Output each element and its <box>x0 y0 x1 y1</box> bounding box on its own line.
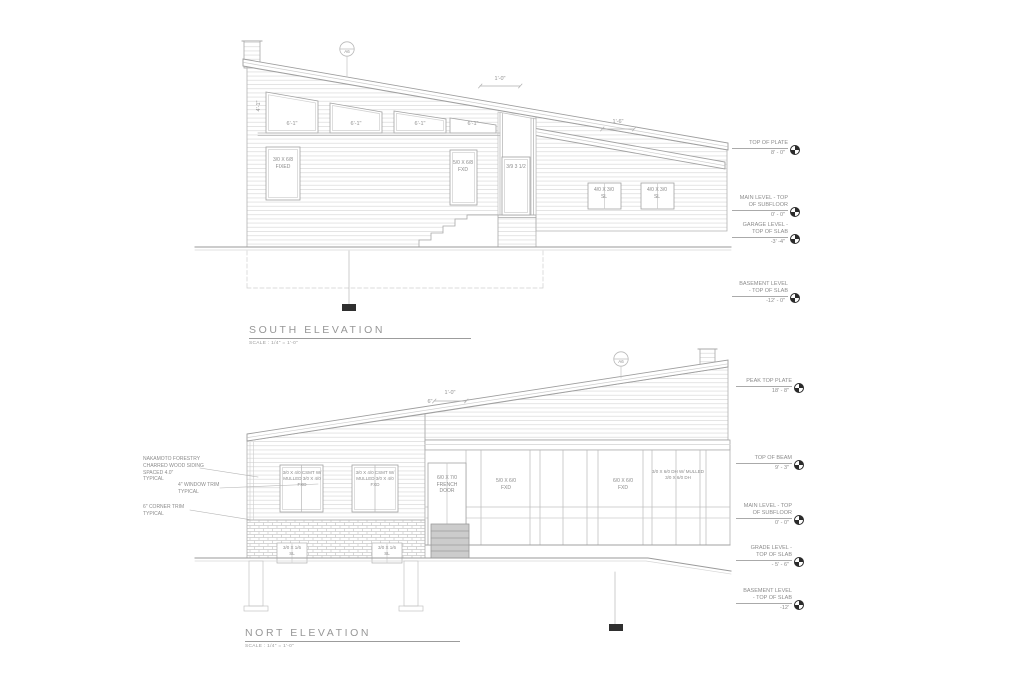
south-window-label-left: 3/0 X 6/8 FIXED <box>266 157 300 170</box>
south-dim-clerestory-1: 6'-1" <box>276 121 308 127</box>
north-level-main: MAIN LEVEL - TOP OF SUBFLOOR 0' - 0" <box>736 503 792 527</box>
north-casement-label-left: 3/0 X 4/0 CSMT W/ MULLED 3/0 X 4/0 FXD <box>281 470 323 488</box>
level-name: TOP OF BEAM <box>736 455 792 464</box>
south-door-label: 3/9 3 1/2 <box>500 164 532 171</box>
north-casement-label-right: 3/0 X 4/0 CSMT W/ MULLED 3/0 X 4/0 FXD <box>353 470 397 488</box>
north-title: NORT ELEVATION <box>245 627 460 642</box>
north-footing-left <box>244 606 268 611</box>
south-garage-window-label-right: 4/0 X 3/0 SL <box>640 187 674 200</box>
level-elevation: 18' - 8" <box>736 387 792 395</box>
north-note-window-trim: 4" WINDOW TRIM TYPICAL <box>178 482 236 496</box>
south-level-main: MAIN LEVEL - TOP OF SUBFLOOR 0' - 0" <box>732 195 788 219</box>
south-level-top-of-plate: TOP OF PLATE 8' - 0" <box>732 140 788 157</box>
south-fixed-window-left <box>266 147 300 200</box>
north-footing-right <box>399 606 423 611</box>
south-dim-overhang-line <box>479 84 523 88</box>
south-dim-clerestory-4: 6'-1" <box>457 121 489 127</box>
level-elevation: 0' - 0" <box>732 211 788 219</box>
level-elevation: -12' <box>736 604 792 612</box>
south-marker-bar <box>342 304 356 311</box>
south-foundation-dashed <box>247 251 543 288</box>
south-dim-clerestory-2: 6'-1" <box>340 121 372 127</box>
north-french-door-label: 6/0 X 7/0 FRENCH DOOR <box>429 475 465 495</box>
south-fixed-window-right <box>450 150 477 205</box>
south-dim-garage-overhang: 1'-6" <box>602 119 634 125</box>
north-grade-line <box>195 558 731 571</box>
north-stairs <box>431 524 469 558</box>
north-level-grade: GRADE LEVEL - TOP OF SLAB - 5' - 6" <box>736 545 792 569</box>
north-note-siding: NAKAMOTO FORESTRY CHARRED WOOD SIDING SP… <box>143 456 207 483</box>
level-elevation: 0' - 0" <box>736 519 792 527</box>
north-level-top-of-beam: TOP OF BEAM 9' - 3" <box>736 455 792 472</box>
level-elevation: 8' - 0" <box>732 149 788 157</box>
north-level-basement: BASEMENT LEVEL - TOP OF SLAB -12' <box>736 588 792 612</box>
north-level-peak-top-plate: PEAK TOP PLATE 18' - 8" <box>736 378 792 395</box>
north-marker-bar <box>609 624 623 631</box>
south-dim-clerestory-height: 4'-1" <box>256 91 262 121</box>
south-title-block: SOUTH ELEVATION SCALE : 1/4" = 1'-0" <box>249 324 471 346</box>
south-scale: SCALE : 1/4" = 1'-0" <box>249 341 471 346</box>
north-column-right <box>404 561 418 606</box>
level-elevation: -12' - 0" <box>732 297 788 305</box>
elevation-line-art <box>0 0 1024 682</box>
south-section-marker-label: A6 <box>340 49 354 54</box>
south-dim-roof-overhang: 1'-0" <box>482 76 518 82</box>
level-name: MAIN LEVEL - TOP OF SUBFLOOR <box>732 195 788 211</box>
south-garage-window-label-left: 4/0 X 3/0 SL <box>587 187 621 200</box>
level-name: BASEMENT LEVEL - TOP OF SLAB <box>732 281 788 297</box>
level-name: BASEMENT LEVEL - TOP OF SLAB <box>736 588 792 604</box>
north-scale: SCALE : 1/4" = 1'-0" <box>245 644 460 649</box>
south-dim-clerestory-3: 6'-1" <box>404 121 436 127</box>
north-note-corner-trim: 6" CORNER TRIM TYPICAL <box>143 504 201 518</box>
north-basement-window-label-right: 3/0 X 1/6 SL <box>372 545 402 557</box>
architectural-sheet: A6 1'-0" 1'-6" 6'-1" 6'-1" 6'-1" 6'-1" 4… <box>0 0 1024 682</box>
north-double-hung-label: 3/0 X 6/0 DH W/ MULLED 3/0 X 6/0 DH <box>650 469 706 481</box>
level-name: MAIN LEVEL - TOP OF SUBFLOOR <box>736 503 792 519</box>
south-title: SOUTH ELEVATION <box>249 324 471 339</box>
level-name: GARAGE LEVEL - TOP OF SLAB <box>732 222 788 238</box>
north-grade-line-2 <box>195 561 731 574</box>
north-fixed-label-right: 6/0 X 6/0 FXD <box>605 478 641 491</box>
south-level-basement: BASEMENT LEVEL - TOP OF SLAB -12' - 0" <box>732 281 788 305</box>
north-basement-window-label-left: 3/0 X 1/6 SL <box>277 545 307 557</box>
north-beam <box>425 440 730 450</box>
level-name: GRADE LEVEL - TOP OF SLAB <box>736 545 792 561</box>
north-dim-roof-overhang: 1'-0" <box>434 390 466 396</box>
north-section-marker-label: A6 <box>614 359 628 364</box>
south-drawing <box>195 41 731 311</box>
level-name: TOP OF PLATE <box>732 140 788 149</box>
level-elevation: - 5' - 6" <box>736 561 792 569</box>
south-window-label-right: 5/0 X 6/8 FXD <box>447 160 479 173</box>
north-title-block: NORT ELEVATION SCALE : 1/4" = 1'-0" <box>245 627 460 649</box>
south-level-garage: GARAGE LEVEL - TOP OF SLAB -3' -4" <box>732 222 788 246</box>
north-dim-fascia-offset: 6" <box>421 399 439 405</box>
north-porch-wall <box>425 450 730 545</box>
level-elevation: -3' -4" <box>732 238 788 246</box>
level-elevation: 9' - 3" <box>736 464 792 472</box>
north-column-left <box>249 561 263 606</box>
north-fixed-label-left: 5/0 X 6/0 FXD <box>488 478 524 491</box>
level-name: PEAK TOP PLATE <box>736 378 792 387</box>
